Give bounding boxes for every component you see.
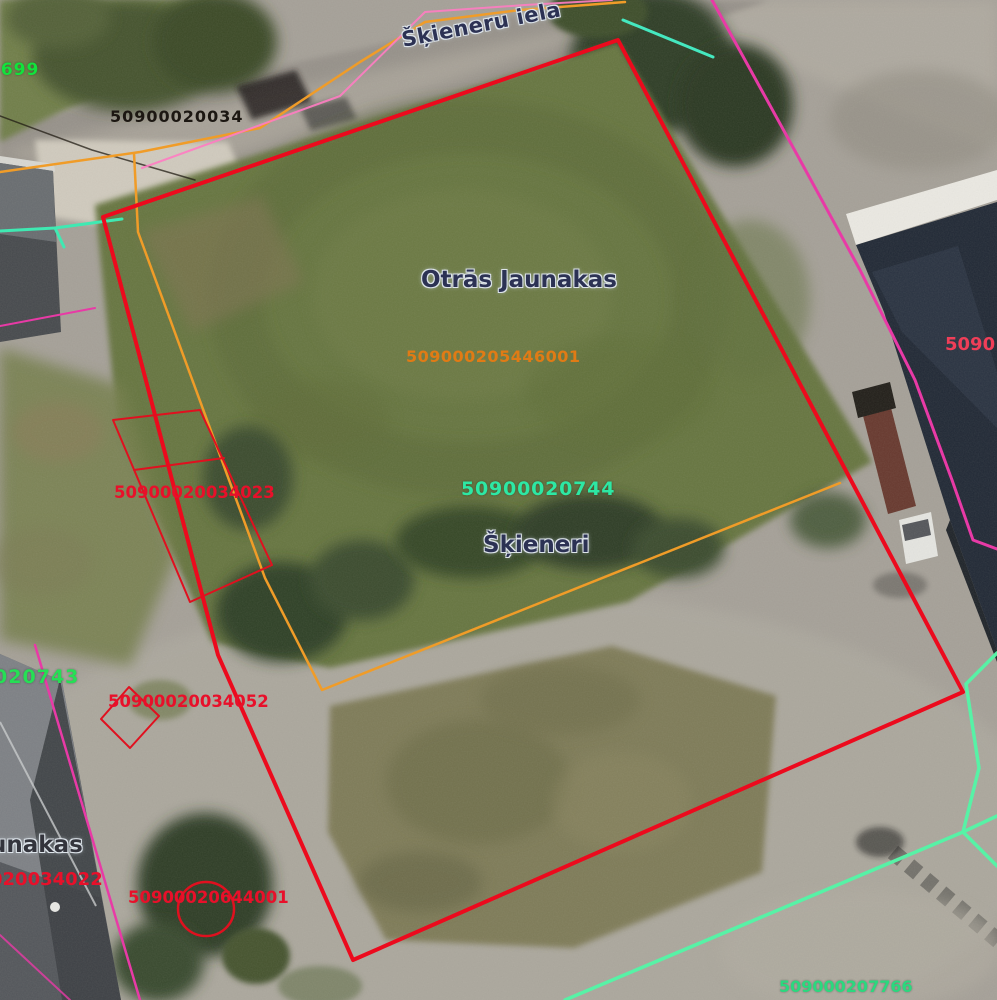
cadastral-number-main-parcel: 50900020744: [461, 480, 615, 499]
map-viewport[interactable]: Šķieneru iela Otrās Jaunakas Šķieneri un…: [0, 0, 997, 1000]
cadastral-number-red-34052: 50900020034052: [108, 694, 269, 711]
cadastral-number-red-34023: 50900020034023: [114, 485, 275, 502]
red-small-parcel-divider: [134, 458, 224, 470]
cadastral-number-green-topleft: 0699: [0, 62, 39, 79]
cadastral-number-red-644001: 50900020644001: [128, 890, 289, 907]
mint-boundary-line-right-edge: [963, 653, 997, 832]
mint-boundary-branch: [963, 832, 997, 866]
cadastral-number-black-top: 50900020034: [110, 109, 243, 125]
teal-line-top-right: [623, 20, 713, 57]
cadastral-number-orange-building: 509000205446001: [406, 349, 581, 365]
place-label-jaunakas-partial: unakas: [0, 834, 83, 857]
pink-road-boundary-line: [142, 0, 612, 168]
magenta-line-left-building: [0, 308, 95, 326]
red-small-parcel-boundary: [113, 410, 272, 602]
orange-parcel-boundary-line: [134, 153, 840, 690]
place-label-otras-jaunakas: Otrās Jaunakas: [421, 269, 617, 292]
cadastral-number-green-bottomright: 509000207766: [779, 979, 913, 995]
magenta-line-bottom-left-2: [0, 935, 70, 1000]
place-label-skieneri: Šķieneri: [483, 534, 590, 557]
cadastral-number-green-left: 020743: [0, 668, 79, 687]
cadastral-number-red-34022-partial: 020034022: [0, 871, 103, 889]
cadastral-number-pink-right-partial: 5090: [945, 336, 995, 354]
cyan-line-left-tick: [55, 228, 64, 247]
magenta-building-boundary-line: [712, 0, 997, 549]
mint-boundary-line-main: [565, 816, 997, 1000]
